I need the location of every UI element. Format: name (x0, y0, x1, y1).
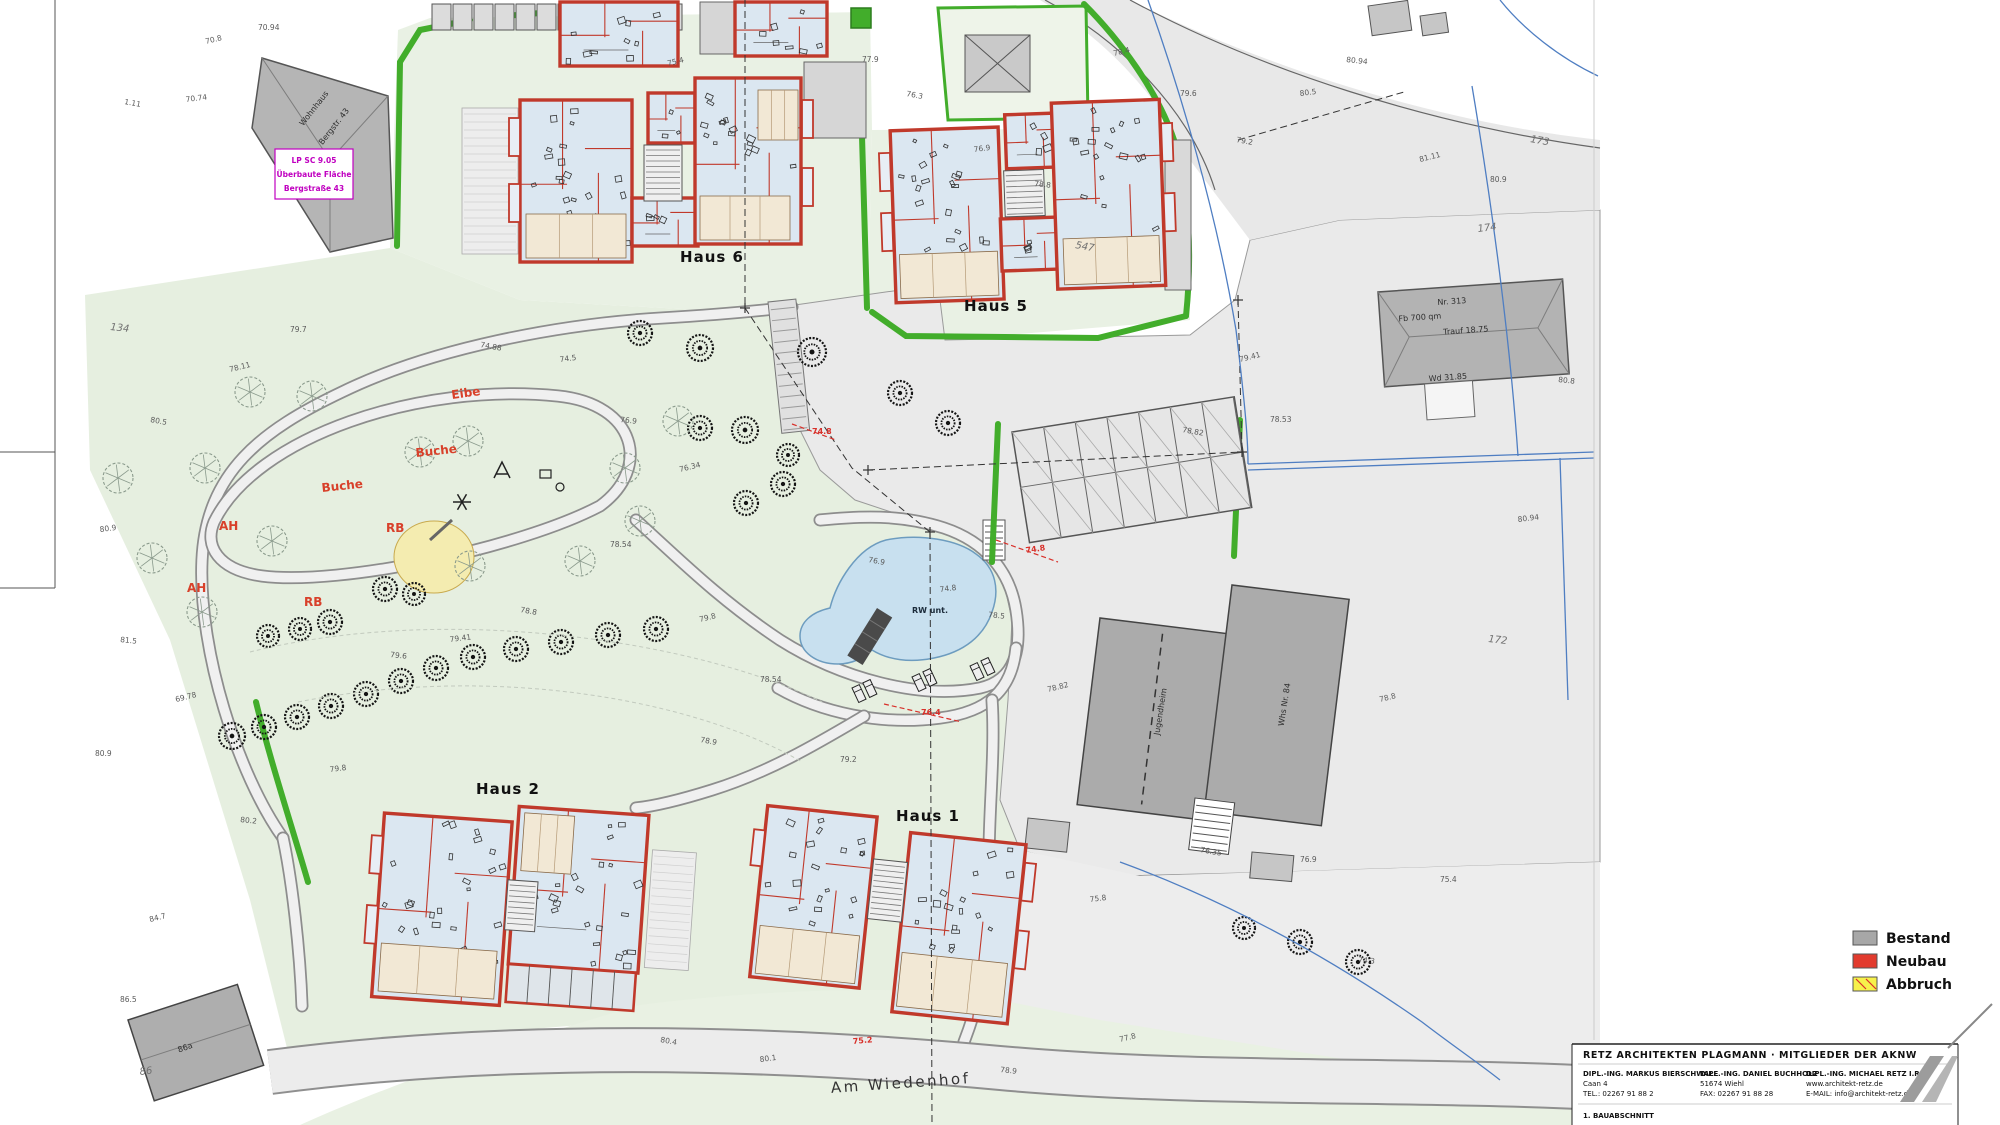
balcony (369, 835, 383, 874)
spot-height: 79.2 (840, 755, 857, 764)
note-line: Überbaute Fläche (277, 170, 352, 179)
phase-label: 1. BAUABSCHNITT (1583, 1112, 1654, 1120)
survey-red-label: 76.4 (921, 708, 941, 717)
spot-height: 77.9 (862, 55, 879, 64)
note-line: Bergstraße 43 (284, 184, 344, 193)
spot-height: 78.5 (988, 610, 1006, 621)
stair-core (1004, 170, 1046, 217)
garage-cell (453, 4, 472, 30)
balcony (509, 118, 520, 156)
neubau-building (560, 2, 678, 66)
tree-species-label: AH (219, 519, 238, 533)
spot-height: 80.94 (1346, 55, 1369, 66)
fax: FAX: 02267 91 88 28 (1700, 1090, 1773, 1098)
spot-height: 81.5 (120, 635, 138, 646)
title-block: RETZ ARCHITEKTEN PLAGMANN · MITGLIEDER D… (1572, 1004, 2000, 1125)
balcony (802, 100, 813, 138)
survey-red-label: 75.2 (852, 1035, 872, 1046)
phone: TEL.: 02267 91 88 2 (1582, 1090, 1654, 1098)
garage-cell (495, 4, 514, 30)
spot-height: 70.94 (258, 23, 280, 32)
spot-height: 74.3 (1358, 955, 1376, 966)
note-line: LP SC 9.05 (292, 156, 337, 165)
balcony (881, 213, 893, 251)
tree-species-label: RB (386, 521, 404, 535)
spot-height: 86 (139, 1066, 153, 1078)
house-label: Haus 1 (896, 807, 960, 825)
garage-cell (516, 4, 535, 30)
garage-cell (474, 4, 493, 30)
spot-height: 78.54 (760, 675, 782, 684)
legend-swatch-bestand (1853, 931, 1877, 945)
shed (1420, 12, 1449, 35)
spot-height: 76.9 (620, 415, 638, 426)
spot-height: 70.8 (204, 33, 223, 46)
spot-height: 76.9 (1300, 855, 1317, 864)
spot-height: 86.5 (120, 995, 137, 1004)
tree-species-label: AH (187, 581, 206, 595)
balcony (879, 153, 891, 191)
email: E-MAIL: info@architekt-retz.de (1806, 1090, 1913, 1098)
address-1: Caan 4 (1583, 1080, 1608, 1088)
legend-label-neubau: Neubau (1886, 954, 1947, 970)
spot-height: 80.9 (99, 523, 117, 534)
spot-height: 174 (1477, 222, 1497, 235)
partner-3: DIPL.-ING. MICHAEL RETZ I.R. (1806, 1070, 1922, 1078)
balcony (802, 168, 813, 206)
partner-1: DIPL.-ING. MARKUS BIERSCHWALE (1583, 1070, 1719, 1078)
garage-cell (432, 4, 451, 30)
spot-height: 80.9 (95, 749, 112, 758)
spot-height: 79.6 (390, 650, 408, 661)
sand-circle (394, 521, 474, 593)
neubau-building (648, 93, 695, 143)
survey-red-label: 74.8 (812, 427, 832, 436)
spot-height: 79.6 (1180, 89, 1197, 98)
balcony (509, 184, 520, 222)
bestand-house-sw (128, 984, 264, 1100)
spot-height: 172 (1488, 634, 1508, 647)
shed (1025, 818, 1070, 852)
neubau-building (735, 2, 827, 56)
spot-height: 78.9 (1000, 1065, 1018, 1076)
firm-name: RETZ ARCHITEKTEN PLAGMANN · MITGLIEDER D… (1583, 1050, 1917, 1061)
house-label: Haus 5 (964, 297, 1028, 315)
tree-species-label: RB (304, 595, 322, 609)
spot-height: 80.8 (1558, 375, 1576, 386)
address-2: 51674 Wiehl (1700, 1080, 1744, 1088)
legend-swatch-neubau (1853, 954, 1877, 968)
spot-height: 134 (110, 322, 130, 335)
shed (1368, 0, 1412, 35)
bestand-hall-1 (1077, 618, 1227, 820)
legend: Bestand Neubau Abbruch (1838, 920, 1988, 1006)
site-plan: 70.870.941.1170.7413475.477.976.376.978.… (0, 0, 2000, 1125)
shed-cross (965, 35, 1030, 92)
legend-label-abbruch: Abbruch (1886, 977, 1952, 993)
spot-height: 1.11 (124, 97, 142, 109)
stair-core (867, 859, 907, 922)
pond-label: RW unt. (912, 606, 948, 615)
spot-height: 79.7 (290, 325, 307, 334)
spot-height: 78.53 (1270, 415, 1292, 424)
shed (1250, 852, 1294, 882)
house-label: Haus 6 (680, 248, 744, 266)
note-box: LP SC 9.05 Überbaute Fläche Bergstraße 4… (275, 149, 353, 199)
balcony (1161, 123, 1173, 161)
spot-height: 75.4 (1440, 875, 1457, 884)
website: www.architekt-retz.de (1806, 1080, 1883, 1088)
house-label: Haus 2 (476, 780, 540, 798)
balcony (364, 905, 378, 944)
spot-height: 70.74 (185, 92, 208, 104)
spot-height: 78.54 (610, 540, 632, 549)
spot-height: 80.2 (240, 815, 258, 826)
site-plan-sheet: 70.870.941.1170.7413475.477.976.376.978.… (0, 0, 2000, 1125)
stair-core (644, 145, 682, 201)
garage-cell (537, 4, 556, 30)
spot-height: 76.3 (906, 89, 924, 101)
spot-height: 84.7 (148, 911, 167, 924)
balcony (1163, 193, 1175, 231)
spot-height: 80.9 (1490, 175, 1507, 184)
partner-2: DIPL.-ING. DANIEL BUCHHOLZ (1700, 1070, 1818, 1078)
spot-height: 78.8 (1034, 179, 1052, 190)
green-box (851, 8, 871, 28)
legend-label-bestand: Bestand (1886, 931, 1951, 947)
